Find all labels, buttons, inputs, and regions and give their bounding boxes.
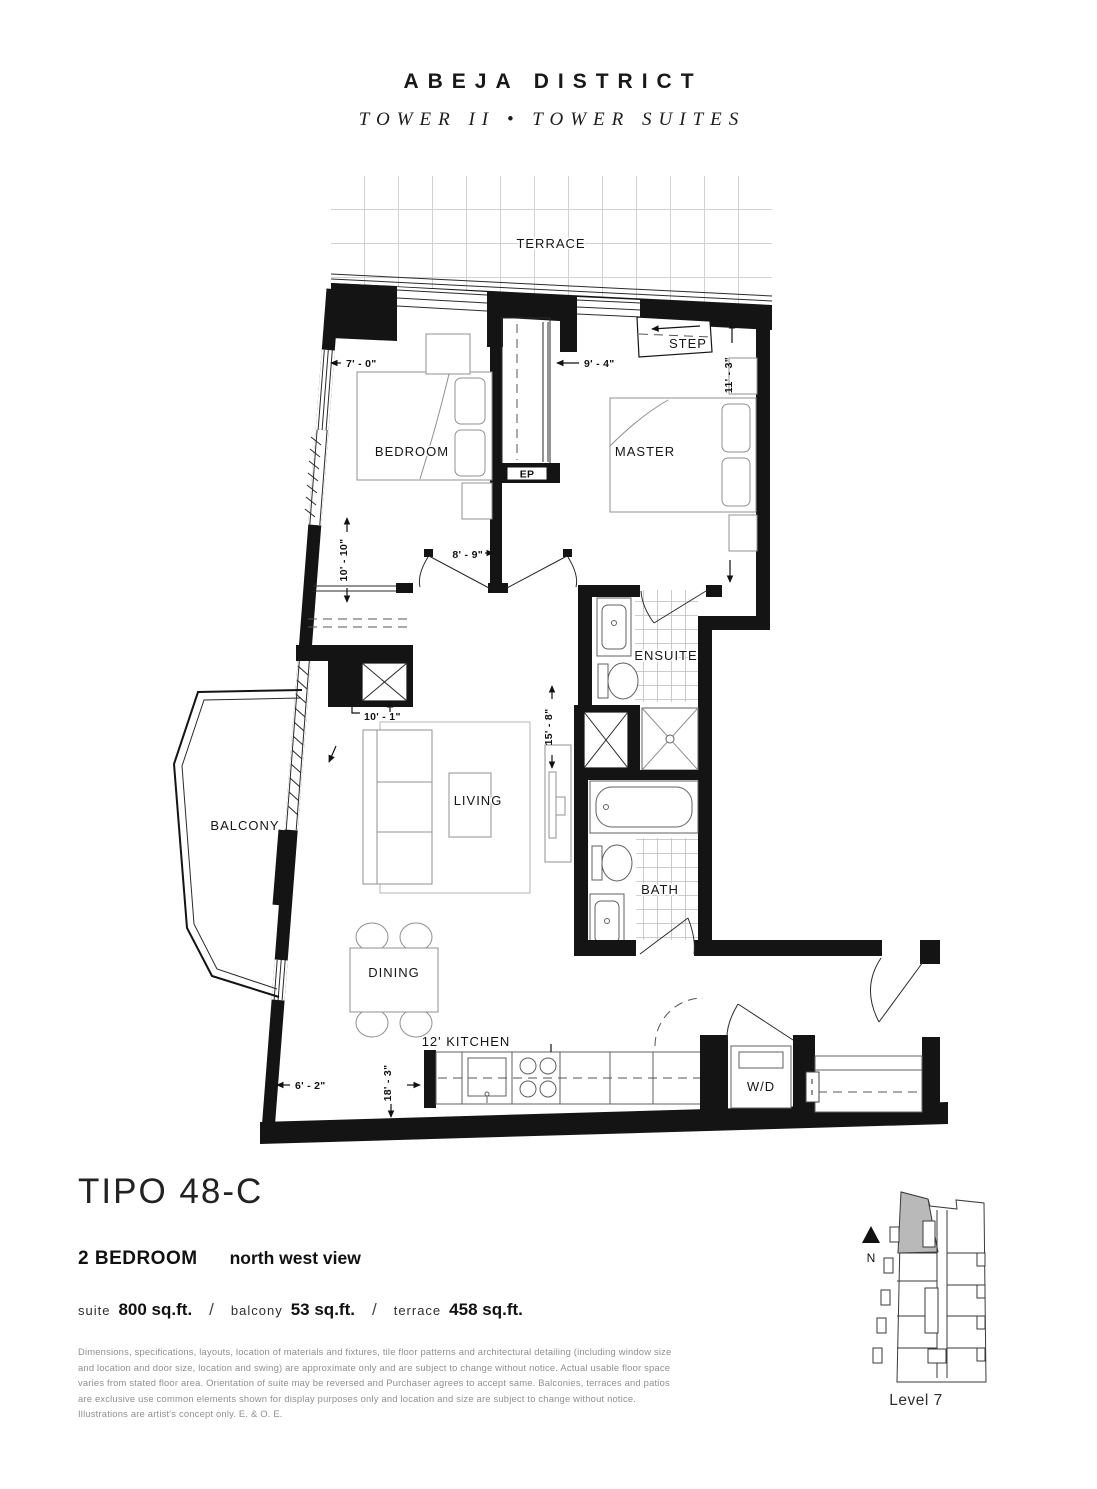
balcony-area-value: 53 sq.ft. (291, 1300, 355, 1320)
living-room: LIVING (363, 722, 571, 893)
disclaimer-text: Dimensions, specifications, layouts, loc… (78, 1344, 684, 1422)
tv-unit (545, 745, 571, 862)
balcony: BALCONY (174, 690, 336, 997)
bathtub (590, 781, 698, 833)
dining-chair (400, 923, 432, 951)
entry-cabinet (815, 1056, 922, 1112)
bedroom-nightstand (462, 483, 492, 519)
balcony-area-label: balcony (231, 1303, 283, 1318)
master-label: MASTER (615, 444, 675, 459)
terrace-area-value: 458 sq.ft. (449, 1300, 523, 1320)
area-summary: suite 800 sq.ft. / balcony 53 sq.ft. / t… (78, 1300, 523, 1320)
balcony-label: BALCONY (210, 818, 279, 833)
bedroom-count: 2 BEDROOM (78, 1248, 198, 1270)
terrace-area-label: terrace (394, 1303, 441, 1318)
kitchen-label: 12' KITCHEN (422, 1034, 511, 1049)
dim-living-width: 10' - 1" (364, 711, 401, 723)
ensuite-toilet (598, 663, 638, 699)
bedroom-bed (357, 372, 492, 480)
plan-name: TIPO 48-C (78, 1172, 263, 1212)
wall-label-box (806, 1072, 819, 1102)
bedroom-label: BEDROOM (375, 444, 449, 459)
keyplan-level-label: Level 7 (889, 1392, 942, 1409)
shaft-shower (574, 705, 712, 780)
sofa (363, 730, 432, 884)
step-label: STEP (669, 336, 707, 351)
bath-toilet (592, 845, 632, 881)
dim-closet-width: 9' - 4" (584, 358, 615, 370)
washer-dryer: W/D (731, 1046, 791, 1108)
washer-dryer-label: W/D (747, 1079, 775, 1094)
living-label: LIVING (454, 793, 503, 808)
bath: BATH (574, 778, 712, 956)
ensuite-vanity (597, 598, 631, 656)
dim-kitchen-run: 18' - 3" (382, 1065, 394, 1102)
dim-master-depth: 11' - 3" (723, 357, 735, 393)
dining-chair (356, 1009, 388, 1037)
floorplan-page: ABEJA DISTRICT TOWER II • TOWER SUITES T… (0, 0, 1097, 1489)
kitchen-sink (468, 1058, 506, 1103)
electrical-panel-label: EP (520, 469, 535, 481)
master-nightstand-bottom (729, 515, 757, 551)
dining-chair (356, 923, 388, 951)
dim-bedroom-depth: 10' - 10" (338, 539, 350, 582)
dim-bedroom-width: 7' - 0" (346, 358, 377, 370)
dining-label: DINING (368, 965, 420, 980)
dining-area: DINING (350, 923, 438, 1037)
suite-area-label: suite (78, 1303, 110, 1318)
kitchen: 12' KITCHEN (422, 998, 704, 1108)
separator: / (372, 1300, 377, 1320)
north-label: N (867, 1251, 876, 1265)
separator: / (209, 1300, 214, 1320)
north-arrow-icon: N (862, 1226, 880, 1265)
dim-balcony-width: 6' - 2" (295, 1080, 326, 1092)
view-orientation: north west view (230, 1248, 361, 1269)
entry-door (870, 958, 923, 1022)
terrace-step: STEP (637, 317, 712, 357)
suite-area-value: 800 sq.ft. (118, 1300, 192, 1320)
shower (642, 708, 698, 770)
hall-closet: EP (498, 318, 560, 483)
bedroom-dresser (426, 334, 470, 374)
bedroom: BEDROOM (357, 306, 502, 587)
keyplan: N Level 7 (862, 1192, 986, 1409)
dining-table (350, 948, 438, 1012)
laundry-entry: W/D (700, 958, 923, 1115)
plan-type-line: 2 BEDROOM north west view (78, 1248, 361, 1270)
terrace-label: TERRACE (516, 236, 585, 251)
ensuite-label: ENSUITE (634, 648, 697, 663)
dim-bedroom-doors: 8' - 9" (452, 549, 483, 561)
dining-chair (400, 1009, 432, 1037)
bath-label: BATH (641, 882, 679, 897)
dim-living-depth: 15' - 8" (543, 709, 555, 746)
